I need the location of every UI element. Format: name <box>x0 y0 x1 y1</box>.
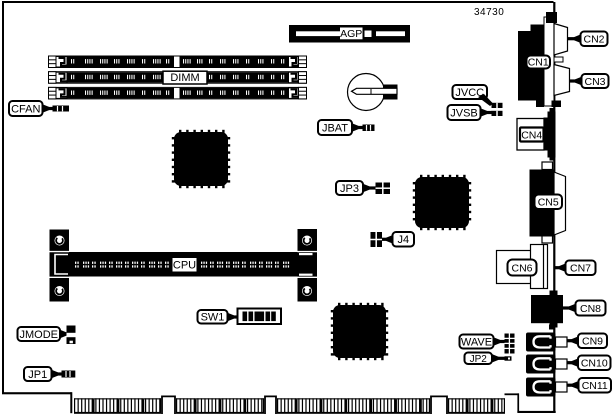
svg-text:AGP: AGP <box>340 28 362 40</box>
svg-text:34730: 34730 <box>474 7 504 18</box>
svg-text:CPU: CPU <box>173 260 196 272</box>
svg-text:CN11: CN11 <box>582 380 608 392</box>
svg-text:CFAN: CFAN <box>11 103 40 115</box>
svg-text:CN2: CN2 <box>583 34 604 46</box>
svg-text:JVSB: JVSB <box>450 107 478 119</box>
svg-text:CN9: CN9 <box>582 336 603 348</box>
svg-text:J4: J4 <box>397 234 409 246</box>
svg-text:CN7: CN7 <box>570 263 591 275</box>
svg-text:JP2: JP2 <box>470 354 488 365</box>
svg-text:SW1: SW1 <box>201 312 225 324</box>
svg-text:DIMM: DIMM <box>170 72 199 84</box>
svg-text:CN8: CN8 <box>580 303 601 315</box>
svg-text:CN5: CN5 <box>538 196 559 208</box>
svg-text:WAVE: WAVE <box>461 336 492 348</box>
svg-text:CN3: CN3 <box>584 76 605 88</box>
svg-text:JBAT: JBAT <box>322 122 348 134</box>
svg-text:CN1: CN1 <box>528 57 549 69</box>
svg-text:JP3: JP3 <box>340 183 359 195</box>
svg-text:CN6: CN6 <box>511 263 532 275</box>
svg-text:CN4: CN4 <box>521 129 542 141</box>
svg-text:JMODE: JMODE <box>20 329 59 341</box>
svg-text:JP1: JP1 <box>28 369 47 381</box>
svg-text:CN10: CN10 <box>581 358 608 370</box>
